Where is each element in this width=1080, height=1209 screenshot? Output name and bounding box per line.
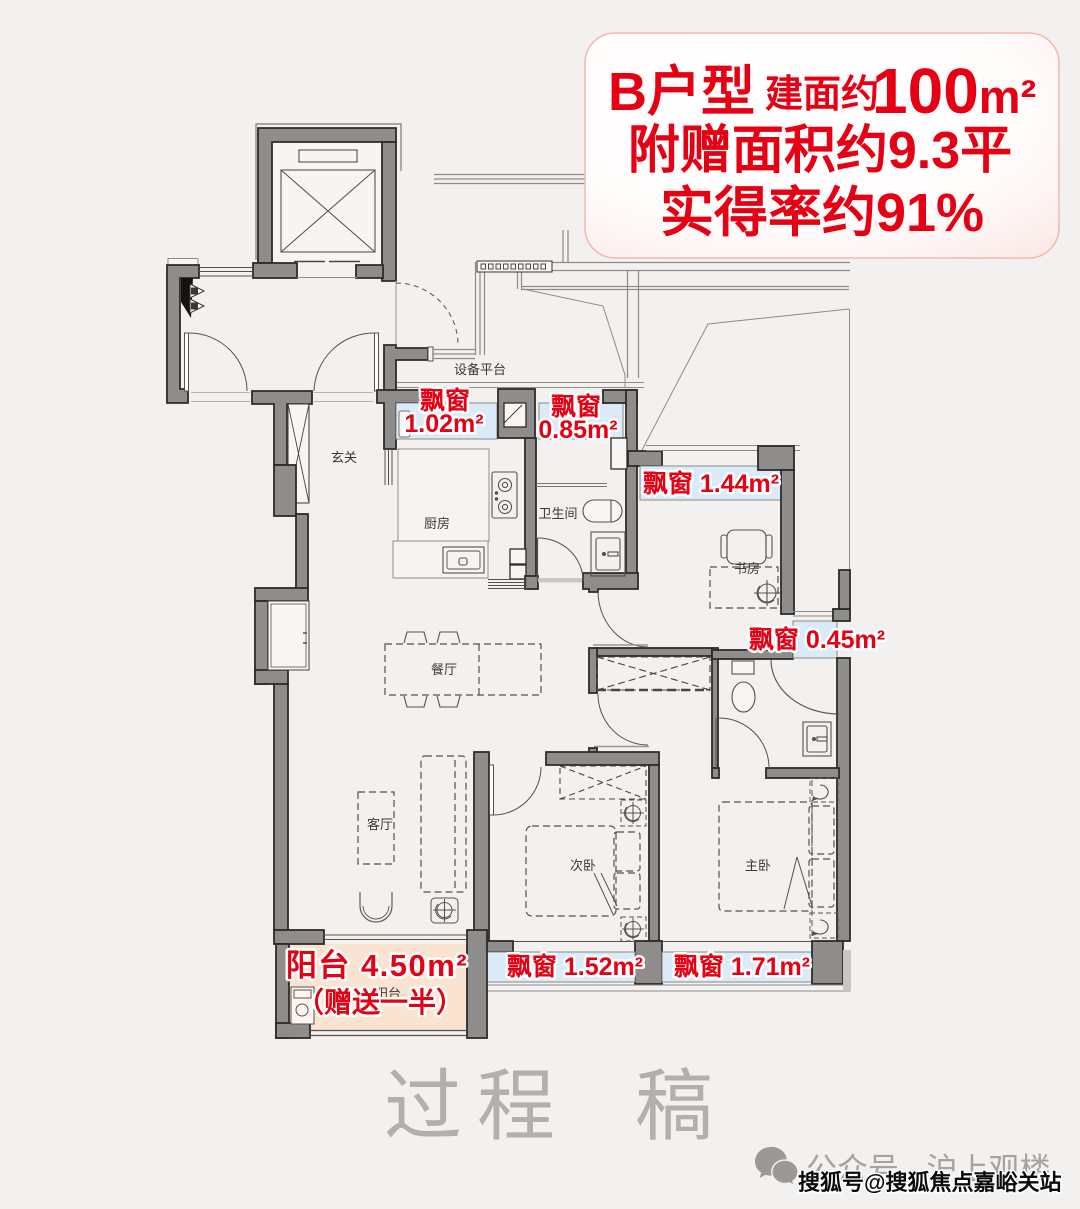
svg-text:飘窗 0.45m²: 飘窗 0.45m² bbox=[749, 625, 885, 654]
svg-text:稿: 稿 bbox=[635, 1062, 713, 1150]
svg-text:0.85m²: 0.85m² bbox=[538, 416, 617, 444]
svg-text:书房: 书房 bbox=[734, 561, 760, 576]
svg-text:实得率约91%: 实得率约91% bbox=[660, 183, 984, 243]
svg-text:搜狐号@搜狐焦点嘉峪关站: 搜狐号@搜狐焦点嘉峪关站 bbox=[798, 1170, 1061, 1195]
svg-text:玄关: 玄关 bbox=[331, 450, 357, 465]
svg-text:过: 过 bbox=[384, 1062, 462, 1150]
svg-text:飘窗 1.52m²: 飘窗 1.52m² bbox=[507, 952, 643, 981]
svg-text:卫生间: 卫生间 bbox=[538, 506, 577, 521]
svg-text:B户型: B户型 bbox=[608, 62, 755, 122]
svg-text:次卧: 次卧 bbox=[570, 858, 596, 873]
svg-text:阳台 4.50m²: 阳台 4.50m² bbox=[286, 948, 468, 983]
svg-text:（赠送一半）: （赠送一半） bbox=[296, 986, 464, 1018]
svg-text:建面约: 建面约 bbox=[765, 74, 879, 116]
svg-text:餐厅: 餐厅 bbox=[431, 662, 457, 677]
svg-text:设备平台: 设备平台 bbox=[454, 362, 506, 377]
svg-text:厨房: 厨房 bbox=[424, 516, 450, 531]
svg-text:飘窗 1.44m²: 飘窗 1.44m² bbox=[643, 469, 779, 498]
svg-text:主卧: 主卧 bbox=[745, 858, 771, 873]
svg-text:飘窗 1.71m²: 飘窗 1.71m² bbox=[674, 952, 810, 981]
svg-text:1.02m²: 1.02m² bbox=[404, 410, 483, 438]
svg-text:客厅: 客厅 bbox=[367, 817, 393, 832]
svg-text:程: 程 bbox=[477, 1062, 555, 1150]
svg-text:附赠面积约9.3平: 附赠面积约9.3平 bbox=[628, 122, 1012, 180]
